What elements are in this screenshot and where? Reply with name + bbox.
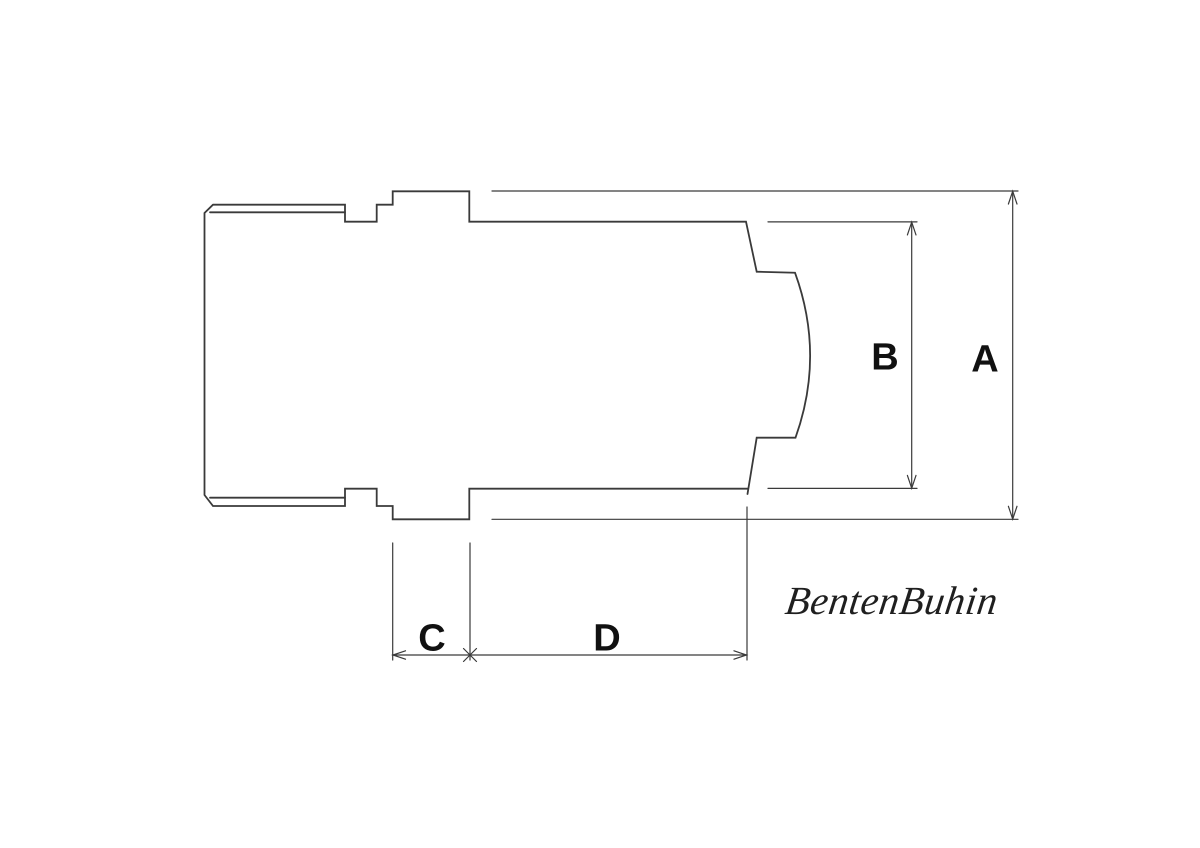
dimension-a: A <box>492 191 1018 519</box>
dim-label-c: C <box>418 618 445 660</box>
dim-label-b: B <box>871 337 898 379</box>
dim-label-d: D <box>593 618 620 660</box>
technical-drawing-svg: A B C D BentenBuhin <box>0 0 1200 848</box>
signature-text: BentenBuhin <box>783 578 1001 623</box>
dimension-b: B <box>768 222 917 489</box>
dim-label-a: A <box>971 339 998 381</box>
signature: BentenBuhin <box>783 578 1001 623</box>
dimension-c-d: C D <box>393 507 747 662</box>
part-view <box>205 191 811 519</box>
part-outline <box>205 191 811 519</box>
technical-drawing-page: A B C D BentenBuhin <box>0 0 1200 848</box>
cap-chamfer-edge-lines <box>210 212 345 497</box>
